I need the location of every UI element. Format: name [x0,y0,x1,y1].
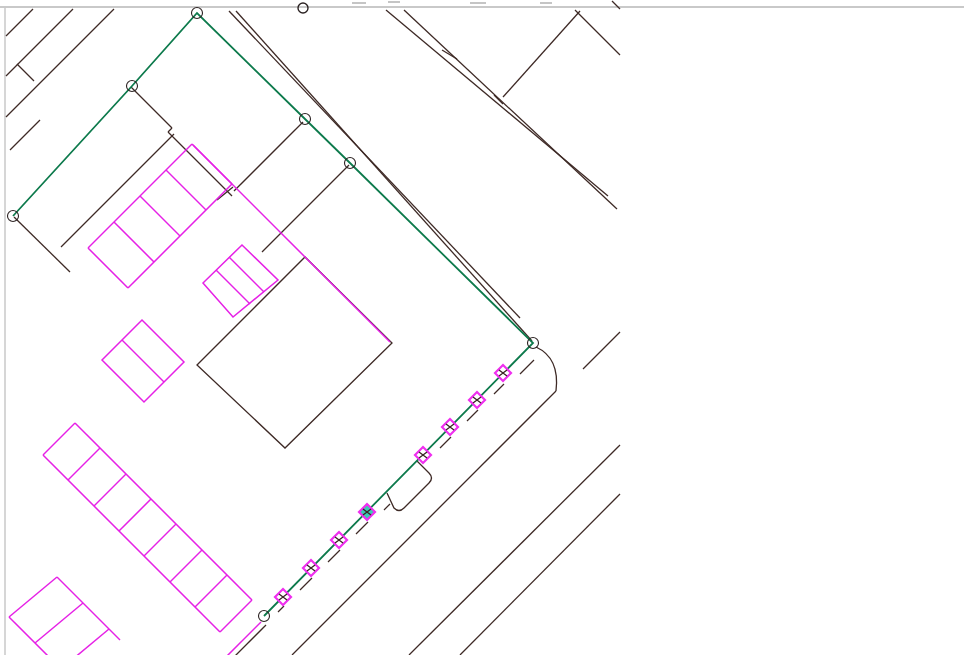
site-plan-canvas[interactable] [0,0,964,655]
parking-island-outline [203,245,278,317]
survey-boundary-layer[interactable] [8,8,539,622]
building-layer [197,257,432,511]
parking-stalls-layer [9,144,390,655]
building-outline [197,257,392,448]
survey-boundary-polyline[interactable] [13,13,533,616]
corner-arc [536,347,557,391]
drawing-viewport[interactable] [0,0,964,655]
road-parcel-layer [6,1,620,655]
curb-segments-layer [278,360,534,612]
canvas-border [0,7,964,655]
